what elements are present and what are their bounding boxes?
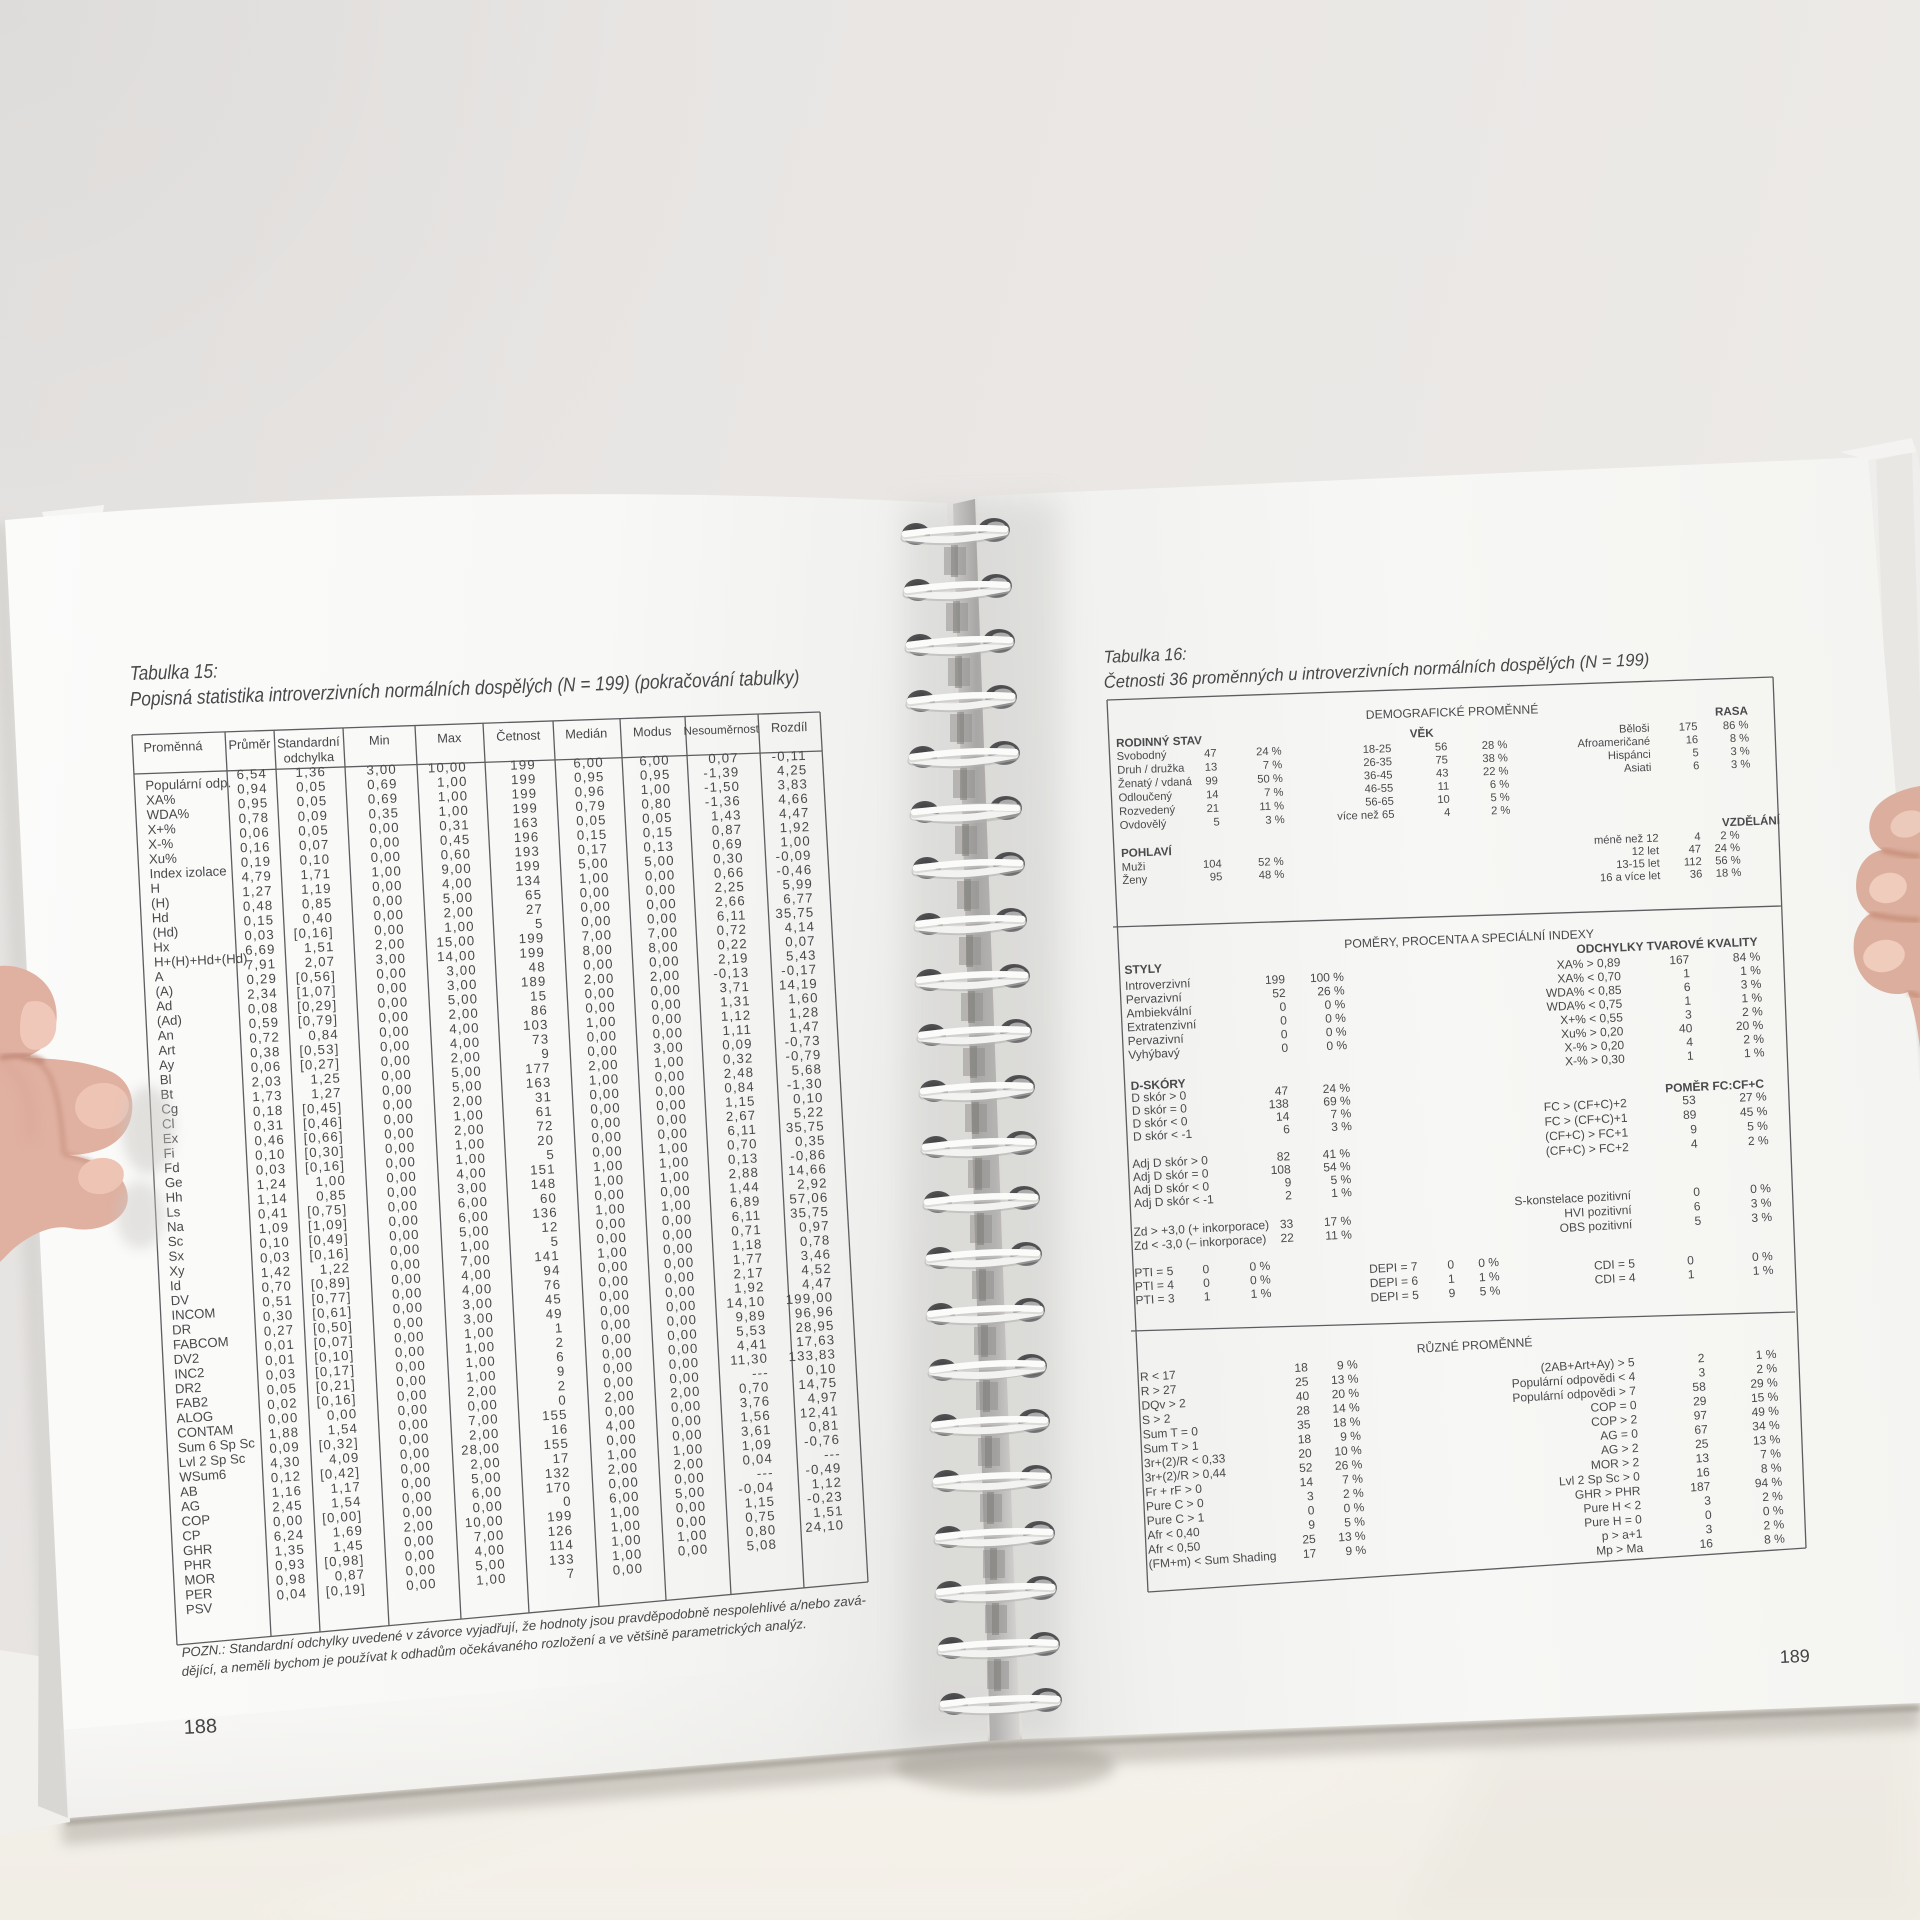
svg-text:POHLAVÍ: POHLAVÍ	[1121, 845, 1173, 860]
svg-text:Četnost: Četnost	[496, 727, 541, 743]
svg-text:Tabulka 16:: Tabulka 16:	[1103, 644, 1187, 667]
svg-text:189: 189	[1779, 1646, 1810, 1667]
svg-text:Tabulka 15:: Tabulka 15:	[130, 661, 219, 685]
svg-text:Max: Max	[437, 730, 462, 746]
svg-text:188: 188	[183, 1715, 217, 1739]
svg-text:odchylka: odchylka	[283, 749, 335, 766]
svg-text:VĚK: VĚK	[1410, 727, 1435, 741]
svg-text:VZDĚLÁNÍ: VZDĚLÁNÍ	[1722, 814, 1781, 829]
svg-text:Průměr: Průměr	[228, 736, 271, 752]
svg-text:Modus: Modus	[633, 723, 672, 739]
svg-text:Rozdíl: Rozdíl	[771, 719, 808, 735]
svg-text:Proměnná: Proměnná	[143, 738, 203, 755]
svg-text:Nesouměrnost: Nesouměrnost	[683, 723, 760, 738]
svg-text:RASA: RASA	[1715, 705, 1749, 719]
svg-text:Medián: Medián	[565, 725, 607, 741]
svg-text:STYLY: STYLY	[1124, 961, 1162, 977]
svg-text:Min: Min	[369, 732, 390, 748]
